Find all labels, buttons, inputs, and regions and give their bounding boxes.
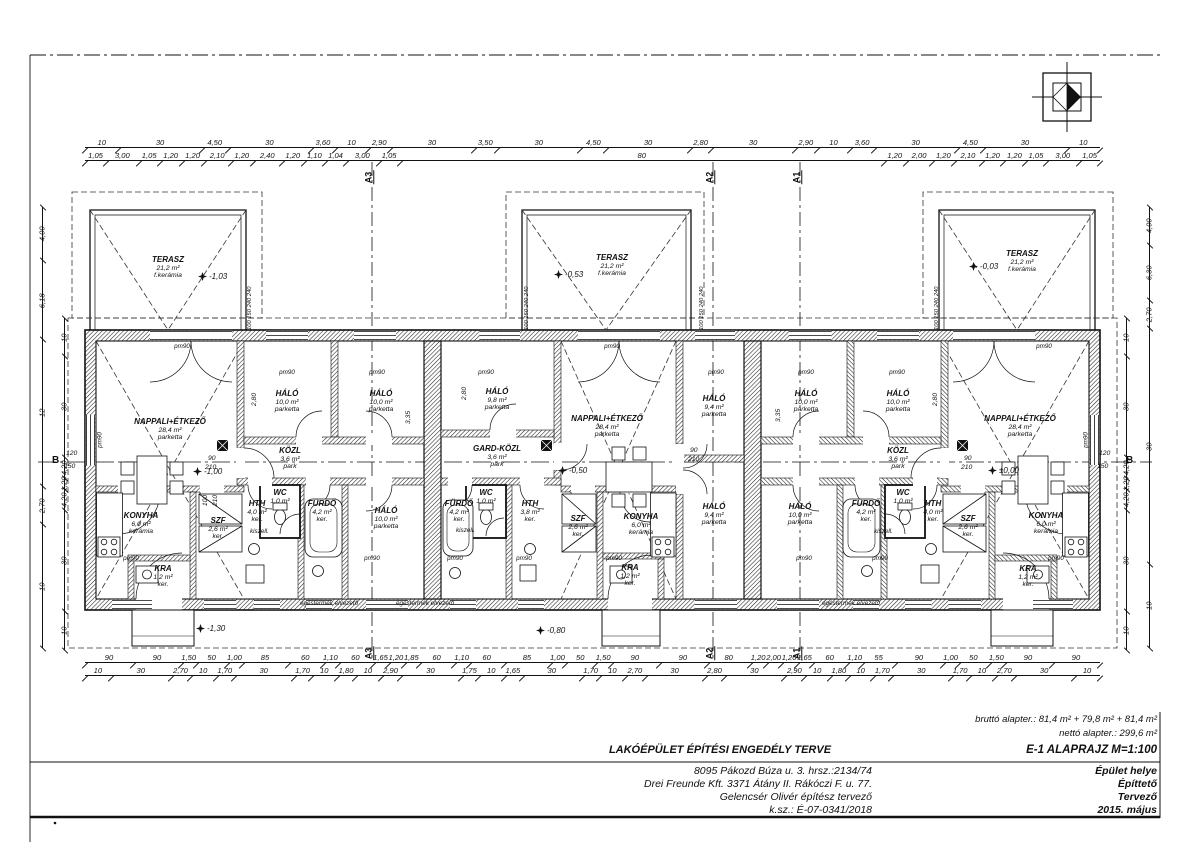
dim-value: 10: [829, 139, 837, 147]
room-rfloor: park: [473, 461, 521, 468]
dim-segment: 30: [58, 357, 70, 458]
dim-segment: 1,10: [323, 653, 338, 665]
dim-segment: 2,80: [690, 138, 712, 150]
dim-value: 55: [874, 654, 882, 662]
room-rfloor: ker.: [568, 531, 587, 538]
dim-value: 1,00: [943, 654, 958, 662]
project-title: LAKÓÉPÜLET ÉPÍTÉSI ENGEDÉLY TERVE: [560, 744, 880, 756]
room-rarea: 9,8 m²: [485, 397, 510, 404]
dim-segment: 1,10: [454, 653, 469, 665]
room-label-hth: HTH4,0 m²ker.: [247, 500, 266, 524]
dim-segment: 10: [804, 666, 830, 678]
dim-value: 2,40: [260, 152, 275, 160]
dim-value: 1,20: [185, 152, 200, 160]
dim-value: 4,00: [1145, 219, 1153, 234]
dim-value: 10: [364, 667, 372, 675]
dim-chain-top-outer: 10304,50303,60102,90303,50304,50302,8030…: [85, 138, 1100, 150]
room-rname: TERASZ: [152, 256, 184, 265]
section-label-a3: A3: [363, 171, 374, 185]
dim-value: 30: [1145, 442, 1153, 450]
dim-segment: 30: [606, 138, 689, 150]
dim-segment: 10: [355, 666, 381, 678]
dim-segment: 4,50: [957, 138, 983, 150]
dim-value: 1,80: [831, 667, 846, 675]
dim-segment: 90: [85, 653, 133, 665]
dim-segment: 2,90: [795, 138, 817, 150]
dim-chain-left-outer: 4,006,18122,7010: [36, 207, 48, 648]
level-marker: -0,03: [969, 262, 998, 271]
level-marker: -0,50: [558, 466, 587, 475]
room-rfloor: parketta: [886, 406, 911, 413]
orientation-symbol-icon: [1032, 62, 1102, 132]
dim-segment: 10: [311, 666, 337, 678]
dim-value: 90: [105, 654, 113, 662]
dim-value: 3,60: [855, 139, 870, 147]
room-rname: KRA: [153, 565, 172, 574]
room-rfloor: parketta: [369, 406, 394, 413]
dim-segment: 1,20: [388, 653, 403, 665]
window-height-note: pm90: [1083, 432, 1090, 448]
dim-value: 90: [915, 654, 923, 662]
dim-value: 10: [320, 667, 328, 675]
dim-value: 10: [487, 667, 495, 675]
dim-value: 10: [1122, 626, 1130, 634]
dim-segment: 1,20: [282, 151, 304, 163]
dim-segment: 30: [58, 510, 70, 611]
dim-chain-left-inner: 10304,201,204,203010: [58, 318, 70, 650]
dim-segment: 2,00: [906, 151, 933, 163]
dim-segment: 6,30: [1143, 245, 1155, 301]
dim-segment: 2,40: [253, 151, 282, 163]
room-rfloor: ker.: [852, 516, 880, 523]
room-rfloor: f.kerámia: [152, 272, 184, 279]
window-height-note: pm90: [1048, 555, 1064, 562]
window-height-note: pm90: [97, 432, 104, 448]
dim-segment: 1,80: [337, 666, 355, 678]
room-label-nappali-3: NAPPALI+ÉTKEZŐ28,4 m²parketta: [984, 415, 1056, 439]
dim-value: 4,20: [1122, 493, 1130, 508]
room-rarea: 1,0 m²: [476, 498, 495, 505]
dim-value: 60: [301, 654, 309, 662]
room-label-halo: HÁLÓ10,0 m²parketta: [374, 507, 399, 531]
room-rname: HÁLÓ: [788, 503, 813, 512]
section-label-a1: A1: [791, 647, 802, 661]
terasz-window-dims: 100 150 240 240: [934, 286, 940, 330]
dim-value: 1,50: [989, 654, 1004, 662]
room-rarea: 28,4 m²: [134, 427, 206, 434]
dim-value: 2,90: [383, 667, 398, 675]
dim-segment: 1,20: [160, 151, 182, 163]
dim-segment: 30: [874, 138, 957, 150]
room-rarea: 10,0 m²: [788, 512, 813, 519]
room-label-konyha: KONYHA6,0 m²kerámia: [124, 512, 159, 536]
window-height-note: pm90: [604, 343, 620, 350]
dim-segment: 30: [400, 666, 460, 678]
dim-segment: 10: [1067, 138, 1100, 150]
dim-segment: 90: [1052, 653, 1100, 665]
dim-value: 1,20: [1007, 152, 1022, 160]
room-rarea: 9,4 m²: [702, 404, 727, 411]
room-rname: KRA: [620, 564, 639, 573]
axis-label-b: B: [1126, 455, 1133, 466]
room-label-furdo: FÜRDŐ4,2 m²ker.: [852, 500, 880, 524]
dim-value: 1,05: [142, 152, 157, 160]
dim-segment: 1,20: [750, 653, 765, 665]
dim-segment: 1,20: [1003, 151, 1025, 163]
window-height-note: pm90: [123, 555, 139, 562]
dim-value: 1,04: [328, 152, 343, 160]
room-rname: NAPPALI+ÉTKEZŐ: [134, 418, 206, 427]
level-marker: -1,03: [198, 272, 227, 281]
room-rname: SZF: [208, 517, 227, 526]
room-rname: HTH: [520, 500, 539, 509]
room-label-szf: SZF2,6 m²ker.: [958, 515, 977, 539]
dim-segment: 10: [969, 666, 995, 678]
dim-segment: 1,85: [404, 653, 420, 665]
dim-segment: 1,20: [58, 478, 70, 489]
dim-segment: 1,10: [304, 151, 325, 163]
dim-value: 1,85: [404, 654, 419, 662]
window-height-note: pm90: [279, 369, 295, 376]
room-rname: HÁLÓ: [702, 503, 727, 512]
room-label-kra: KRA1,2 m²ker.: [620, 564, 639, 588]
dim-segment: 90: [133, 653, 181, 665]
dim-value: 30: [749, 139, 757, 147]
room-label-wc: WC1,0 m²: [893, 489, 912, 505]
room-rname: TERASZ: [596, 254, 628, 263]
dim-segment: 90: [895, 653, 943, 665]
dim-segment: 10: [190, 666, 216, 678]
dim-segment: 1,20: [884, 151, 906, 163]
dim-value: 1,00: [550, 654, 565, 662]
dim-segment: 3,00: [106, 151, 139, 163]
dim-value: 3,50: [478, 139, 493, 147]
room-rfloor: ker.: [208, 533, 227, 540]
terasz-window-dims: 100 150 240 240: [524, 286, 530, 330]
dim-segment: 1,65: [373, 653, 389, 665]
dim-chain-bottom-inner: 90901,50501,0085601,10601,651,201,85601,…: [85, 653, 1100, 665]
dim-value: 1,05: [382, 152, 397, 160]
room-label-halo: HÁLÓ9,8 m²parketta: [485, 388, 510, 412]
room-rname: KONYHA: [124, 512, 159, 521]
level-marker-icon: [558, 466, 567, 475]
dim-value: 10: [1083, 667, 1091, 675]
dim-value: 30: [60, 403, 68, 411]
dim-value: 90: [1024, 654, 1032, 662]
room-label-konyha: KONYHA6,0 m²kerámia: [624, 513, 659, 537]
room-rname: SZF: [958, 515, 977, 524]
dim-segment: 6,18: [36, 261, 48, 340]
dim-segment: 4,50: [202, 138, 228, 150]
room-rarea: 4,0 m²: [923, 509, 942, 516]
level-value: -0,03: [980, 262, 998, 271]
dim-value: 1,10: [323, 654, 338, 662]
flue-note: égéstermék elvezető: [300, 600, 358, 607]
dim-segment: 85: [242, 653, 288, 665]
dim-segment: 10: [478, 666, 504, 678]
dim-segment: 10: [58, 318, 70, 357]
room-rname: HÁLÓ: [794, 390, 819, 399]
interior-dim: 90: [690, 447, 698, 454]
room-rfloor: parketta: [794, 406, 819, 413]
room-rarea: 10,0 m²: [275, 399, 300, 406]
room-label-gard-kozl: GARD-KÖZL3,6 m²park: [473, 445, 521, 469]
room-label-hth: HTH3,8 m²ker.: [520, 500, 539, 524]
dim-value: 90: [631, 654, 639, 662]
dim-value: 1,80: [339, 667, 354, 675]
interior-dim: 210: [961, 464, 972, 471]
title-row-number: k.sz.: É-07-0341/2018 2015. május: [200, 804, 1157, 816]
dim-value: 85: [261, 654, 269, 662]
dim-value: 1,20: [936, 152, 951, 160]
interior-dim: 3,35: [775, 409, 782, 422]
dim-segment: 4,20: [1120, 490, 1132, 511]
room-rname: KÖZL: [887, 447, 909, 456]
room-rname: NAPPALI+ÉTKEZŐ: [571, 415, 643, 424]
room-rname: FÜRDŐ: [308, 500, 336, 509]
dim-value: 30: [137, 667, 145, 675]
room-rname: FÜRDŐ: [445, 500, 473, 509]
flue-note: égéstermék elvezető: [396, 600, 454, 607]
dim-segment: 2,70: [36, 486, 48, 525]
room-rfloor: ker.: [153, 581, 172, 588]
dim-segment: 30: [1120, 357, 1132, 458]
room-rname: WC: [476, 489, 495, 498]
room-label-kozl: KÖZL3,6 m²park: [279, 447, 301, 471]
dim-value: 3,00: [355, 152, 370, 160]
dim-value: 1,20: [751, 654, 766, 662]
dim-segment: 2,70: [995, 666, 1014, 678]
dim-value: 2,10: [210, 152, 225, 160]
designer-name: Gelencsér Olivér építész tervező: [200, 791, 872, 803]
room-rarea: 10,0 m²: [886, 399, 911, 406]
dim-value: 60: [482, 654, 490, 662]
dim-value: 1,20: [887, 152, 902, 160]
dim-value: 2,00: [912, 152, 927, 160]
dim-value: 2,00: [766, 654, 781, 662]
room-rarea: 4,2 m²: [308, 509, 336, 516]
dim-chain-top-inner: 1,053,001,051,201,202,101,202,401,201,10…: [85, 151, 1100, 163]
dim-value: 1,50: [596, 654, 611, 662]
dim-segment: 2,70: [625, 666, 644, 678]
room-label-wc: WC1,0 m²: [270, 489, 289, 505]
dim-segment: 1,75: [461, 666, 479, 678]
dim-value: 2,80: [707, 667, 722, 675]
dim-value: 1,20: [285, 152, 300, 160]
room-rname: HTH: [923, 500, 942, 509]
interior-dim: 2,80: [461, 387, 468, 400]
room-rarea: 2,6 m²: [208, 526, 227, 533]
dim-segment: 1,50: [595, 653, 610, 665]
dim-value: 10: [60, 626, 68, 634]
room-rarea: 6,0 m²: [1029, 521, 1064, 528]
dim-segment: 1,05: [139, 151, 160, 163]
dim-value: 4,50: [586, 139, 601, 147]
room-label-kra: KRA1,2 m²ker.: [1018, 565, 1037, 589]
dim-segment: 30: [118, 138, 201, 150]
room-rarea: 4,2 m²: [852, 509, 880, 516]
room-rname: KRA: [1018, 565, 1037, 574]
dim-segment: 1,20: [182, 151, 204, 163]
window-height-note: pm90: [369, 369, 385, 376]
dim-segment: 3,00: [1046, 151, 1079, 163]
dim-segment: 10: [58, 611, 70, 650]
dim-value: 10: [347, 139, 355, 147]
dim-segment: 10: [599, 666, 625, 678]
dim-segment: 1,20: [1120, 478, 1132, 489]
room-rfloor: parketta: [275, 406, 300, 413]
dim-segment: 2,10: [954, 151, 981, 163]
room-rfloor: park: [279, 463, 301, 470]
room-rfloor: ker.: [445, 516, 473, 523]
dim-value: 4,50: [207, 139, 222, 147]
dim-value: 10: [608, 667, 616, 675]
room-rfloor: f.kerámia: [596, 270, 628, 277]
room-rarea: 9,4 m²: [702, 512, 727, 519]
dim-segment: 10: [1120, 318, 1132, 357]
level-marker-icon: [193, 467, 202, 476]
window-height-note: pm90: [364, 555, 380, 562]
dim-value: 90: [153, 654, 161, 662]
room-rname: SZF: [568, 515, 587, 524]
room-rfloor: parketta: [788, 519, 813, 526]
designer-label: Tervező: [872, 791, 1157, 803]
dim-segment: 55: [862, 653, 895, 665]
room-label-nappali-1: NAPPALI+ÉTKEZŐ28,4 m²parketta: [134, 418, 206, 442]
dim-segment: 2,80: [705, 666, 725, 678]
dim-segment: 30: [522, 666, 582, 678]
site-label: Épület helye: [872, 765, 1157, 777]
dim-value: 10: [38, 582, 46, 590]
dim-value: 30: [534, 139, 542, 147]
dim-segment: 10: [85, 138, 118, 150]
level-value: -1,30: [207, 624, 225, 633]
room-rfloor: parketta: [702, 519, 727, 526]
room-rarea: 1,2 m²: [153, 574, 172, 581]
dim-value: 1,05: [1029, 152, 1044, 160]
dim-segment: 2,70: [1143, 301, 1155, 329]
dim-chain-bottom-outer: 10302,70101,70301,70101,80102,90301,7510…: [85, 666, 1100, 678]
dim-segment: 2,90: [784, 666, 804, 678]
dim-segment: 1,70: [951, 666, 969, 678]
room-rfloor: f.kerámia: [1006, 266, 1038, 273]
room-rname: GARD-KÖZL: [473, 445, 521, 454]
dim-value: 1,20: [389, 654, 404, 662]
dim-segment: 80: [400, 151, 884, 163]
dim-value: 1,00: [227, 654, 242, 662]
dim-segment: 1,00: [550, 653, 565, 665]
dim-value: 1,05: [1082, 152, 1097, 160]
dim-segment: 30: [711, 138, 794, 150]
dim-segment: 30: [645, 666, 705, 678]
dim-chain-right-inner: 10304,201,204,203010: [1120, 318, 1132, 650]
interior-dim: 100: [202, 495, 209, 506]
axis-label-b: B: [52, 455, 59, 466]
room-rarea: 6,0 m²: [624, 522, 659, 529]
level-value: -0,80: [547, 626, 565, 635]
window-height-note: pm90: [606, 555, 622, 562]
room-rfloor: kerámia: [124, 528, 159, 535]
dim-segment: 3,60: [850, 138, 874, 150]
window-height-note: pm90: [174, 343, 190, 350]
dim-value: 30: [917, 667, 925, 675]
room-rarea: 4,2 m²: [445, 509, 473, 516]
interior-dim: 210: [688, 456, 699, 463]
dim-segment: 1,65: [504, 666, 522, 678]
room-rname: KÖZL: [279, 447, 301, 456]
room-rfloor: park: [887, 463, 909, 470]
dim-value: 50: [969, 654, 977, 662]
axis-offset: 120: [66, 450, 77, 457]
dim-value: 80: [637, 152, 645, 160]
dim-value: 30: [670, 667, 678, 675]
drawing-number: k.sz.: É-07-0341/2018: [200, 804, 872, 816]
room-rarea: 6,0 m²: [124, 521, 159, 528]
section-label-a2: A2: [704, 647, 715, 661]
level-marker: ±0,00: [988, 466, 1019, 475]
dim-value: 90: [679, 654, 687, 662]
interior-dim: 90: [964, 455, 972, 462]
dim-segment: 10: [817, 138, 850, 150]
dim-segment: 1,20: [932, 151, 954, 163]
title-row-site: 8095 Pákozd Búza u. 3. hrsz.:2134/74 Épü…: [200, 765, 1157, 777]
dim-segment: 1,70: [873, 666, 891, 678]
room-rarea: 28,4 m²: [571, 424, 643, 431]
dim-segment: 2,10: [204, 151, 231, 163]
room-rname: HÁLÓ: [275, 390, 300, 399]
dim-segment: 3,00: [346, 151, 379, 163]
room-label-terasz-2: TERASZ21,2 m²f.kerámia: [596, 254, 628, 278]
dim-segment: 1,05: [1079, 151, 1100, 163]
room-rarea: 2,6 m²: [958, 524, 977, 531]
dim-segment: 2,90: [368, 138, 390, 150]
room-rname: WC: [893, 489, 912, 498]
dim-segment: 2,00: [766, 653, 782, 665]
room-rname: WC: [270, 489, 289, 498]
room-label-terasz-3: TERASZ21,2 m²f.kerámia: [1006, 250, 1038, 274]
dim-value: 12: [38, 409, 46, 417]
room-rarea: 10,0 m²: [369, 399, 394, 406]
dim-value: 30: [156, 139, 164, 147]
level-marker-icon: [988, 466, 997, 475]
dim-segment: 1,04: [325, 151, 346, 163]
interior-dim: 210: [212, 495, 219, 506]
net-area-note: nettó alapter.: 299,6 m²: [600, 728, 1157, 739]
dim-value: 50: [207, 654, 215, 662]
level-marker: -0,80: [536, 626, 565, 635]
dim-segment: 1,50: [989, 653, 1004, 665]
dim-value: 2,80: [693, 139, 708, 147]
terasz-window-dims: 100 150 240 240: [699, 286, 705, 330]
level-marker: -1,30: [196, 624, 225, 633]
room-rfloor: parketta: [374, 523, 399, 530]
dim-segment: 10: [848, 666, 874, 678]
dim-value: 1,70: [875, 667, 890, 675]
dim-segment: 10: [36, 525, 48, 648]
dim-value: 3,00: [1055, 152, 1070, 160]
dim-value: 2,90: [787, 667, 802, 675]
room-rarea: 21,2 m²: [1006, 259, 1038, 266]
room-rarea: 3,6 m²: [887, 456, 909, 463]
client-label: Építtető: [872, 778, 1157, 790]
level-marker-icon: [536, 626, 545, 635]
room-label-halo: HÁLÓ10,0 m²parketta: [794, 390, 819, 414]
room-label-halo: HÁLÓ9,4 m²parketta: [702, 395, 727, 419]
window-height-note: pm90: [708, 369, 724, 376]
dim-value: 6,18: [38, 293, 46, 308]
drawing-sheet: { "sheet": { "project_title": "LAKÓÉPÜLE…: [0, 0, 1191, 842]
dim-value: 30: [265, 139, 273, 147]
